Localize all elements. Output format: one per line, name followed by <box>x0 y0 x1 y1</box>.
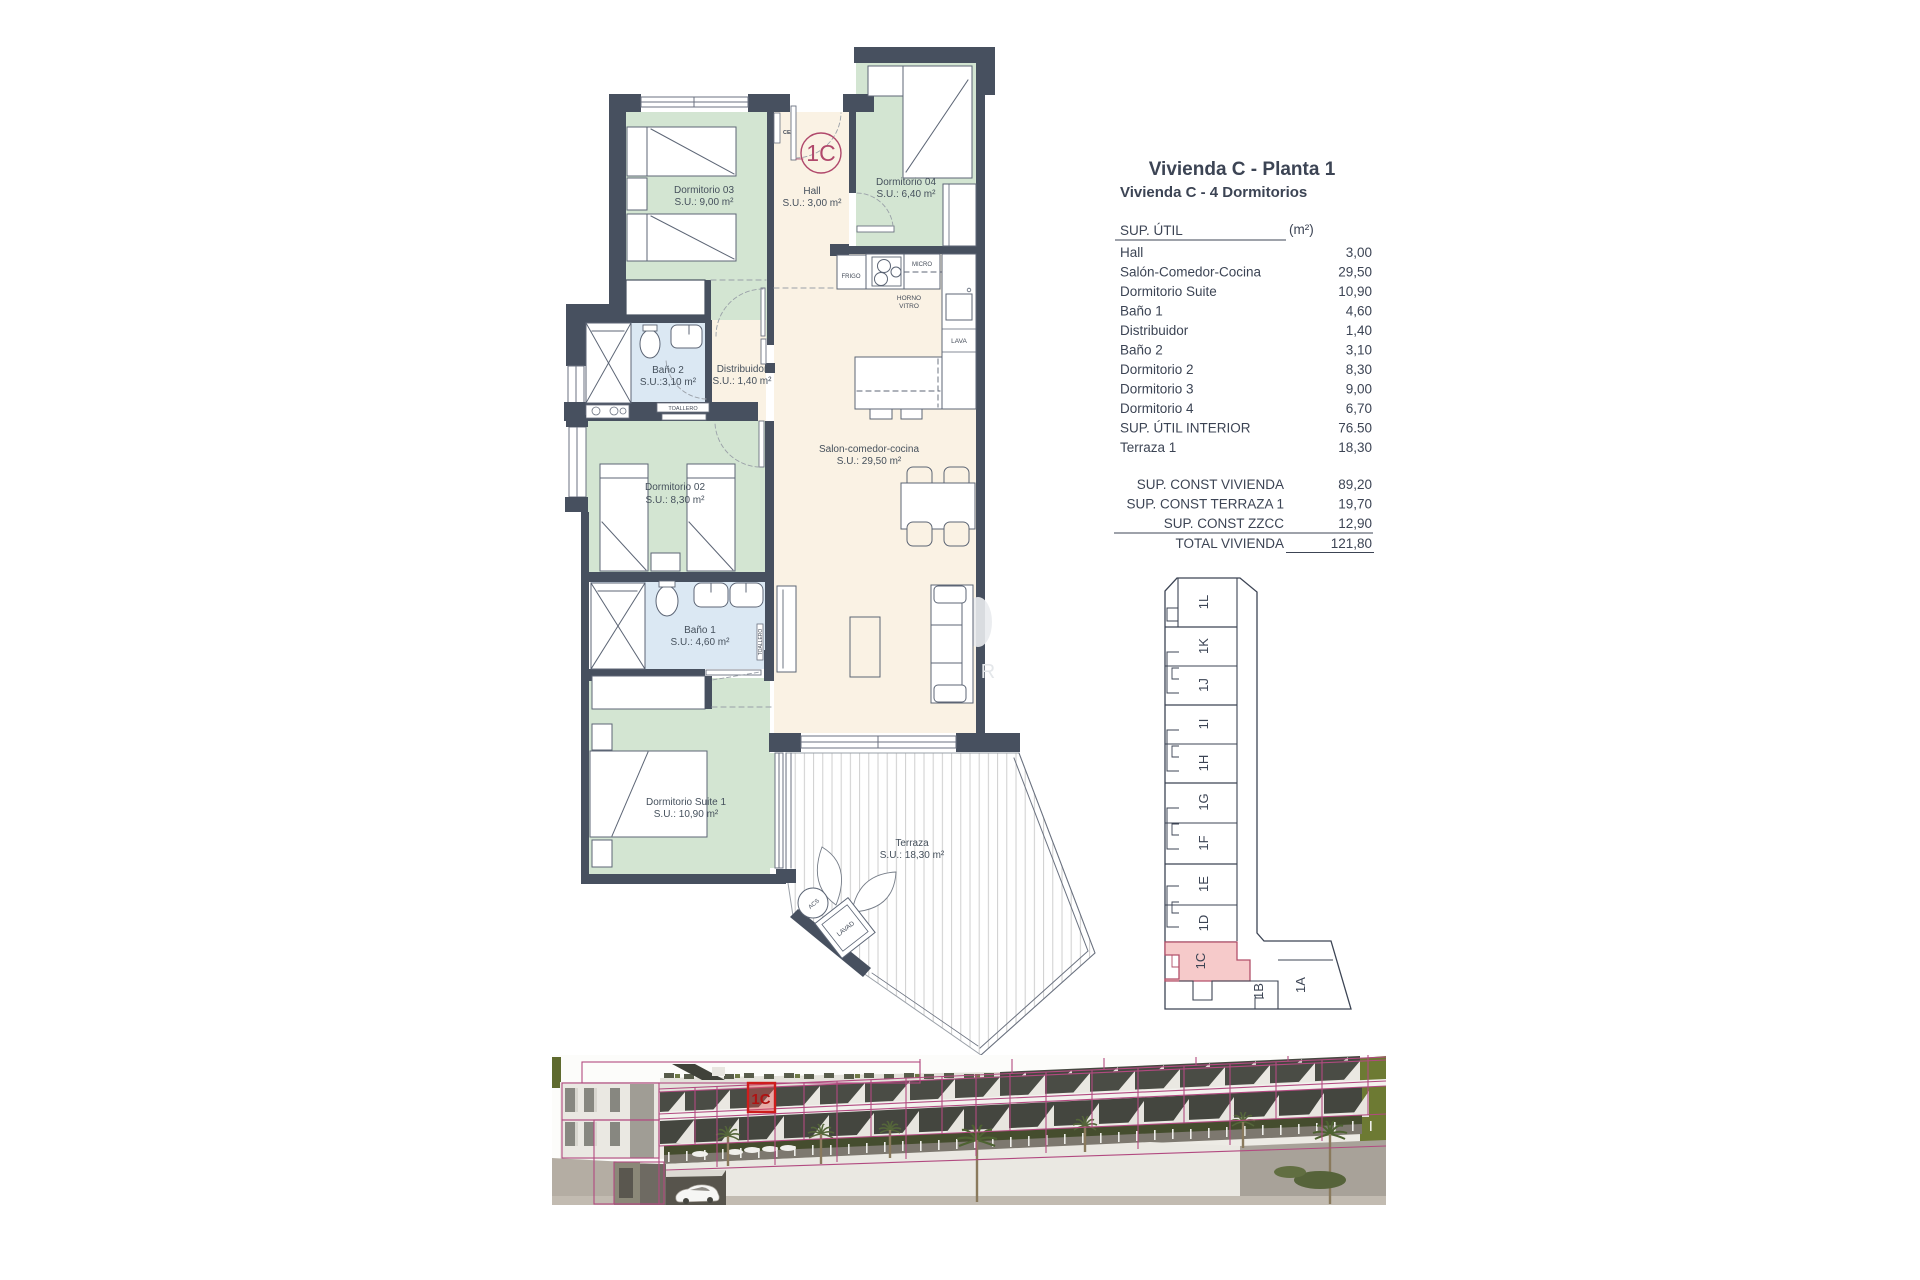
svg-text:S.U.: 10,90 m²: S.U.: 10,90 m² <box>654 809 719 820</box>
svg-text:CE: CE <box>783 130 791 136</box>
svg-text:1K: 1K <box>1196 638 1211 654</box>
svg-text:1G: 1G <box>1196 793 1211 810</box>
svg-text:29,50: 29,50 <box>1338 265 1372 280</box>
svg-text:Distribuidor: Distribuidor <box>717 364 768 375</box>
svg-text:R: R <box>981 661 995 683</box>
svg-text:19,70: 19,70 <box>1338 497 1372 512</box>
svg-text:Dormitorio 03: Dormitorio 03 <box>674 185 734 196</box>
svg-text:SUP. CONST TERRAZA 1: SUP. CONST TERRAZA 1 <box>1126 497 1284 512</box>
svg-text:3,10: 3,10 <box>1346 343 1372 358</box>
svg-text:HORNO: HORNO <box>897 295 921 302</box>
svg-text:Dormitorio 04: Dormitorio 04 <box>876 177 936 188</box>
svg-text:1F: 1F <box>1196 835 1211 850</box>
svg-text:S.U.:3,10 m²: S.U.:3,10 m² <box>640 377 697 388</box>
svg-text:Baño 1: Baño 1 <box>1120 304 1163 319</box>
svg-text:TOTAL VIVIENDA: TOTAL VIVIENDA <box>1175 536 1284 551</box>
svg-text:Vivienda C - 4 Dormitorios: Vivienda C - 4 Dormitorios <box>1120 184 1307 201</box>
svg-text:Dormitorio 2: Dormitorio 2 <box>1120 362 1194 377</box>
svg-text:1L: 1L <box>1196 595 1211 609</box>
svg-text:Hall: Hall <box>1120 245 1143 260</box>
svg-text:1I: 1I <box>1196 719 1211 730</box>
svg-text:S.U.: 1,40 m²: S.U.: 1,40 m² <box>713 376 773 387</box>
svg-text:1C: 1C <box>751 1091 770 1108</box>
svg-text:(m²): (m²) <box>1289 222 1314 237</box>
svg-text:10,90: 10,90 <box>1338 284 1372 299</box>
svg-text:LAVA: LAVA <box>951 338 967 345</box>
svg-text:Distribuidor: Distribuidor <box>1120 323 1189 338</box>
svg-text:1C: 1C <box>1193 953 1208 970</box>
svg-text:4,60: 4,60 <box>1346 304 1372 319</box>
svg-text:Dormitorio Suite: Dormitorio Suite <box>1120 284 1217 299</box>
svg-text:Dormitorio 4: Dormitorio 4 <box>1120 401 1194 416</box>
svg-text:1J: 1J <box>1196 678 1211 692</box>
svg-text:SUP. CONST VIVIENDA: SUP. CONST VIVIENDA <box>1137 477 1284 492</box>
svg-text:Dormitorio 02: Dormitorio 02 <box>645 482 705 493</box>
svg-text:1E: 1E <box>1196 876 1211 892</box>
svg-text:S.U.: 18,30 m²: S.U.: 18,30 m² <box>880 850 945 861</box>
svg-text:Hall: Hall <box>803 186 820 197</box>
svg-text:Baño 2: Baño 2 <box>1120 343 1163 358</box>
svg-text:1D: 1D <box>1196 915 1211 932</box>
svg-text:8,30: 8,30 <box>1346 362 1372 377</box>
svg-text:S.U.: 6,40 m²: S.U.: 6,40 m² <box>877 189 937 200</box>
svg-text:MICRO: MICRO <box>912 262 932 268</box>
svg-text:S.U.: 8,30 m²: S.U.: 8,30 m² <box>646 495 706 506</box>
svg-text:FRIGO: FRIGO <box>842 274 861 280</box>
svg-text:TOALLERO: TOALLERO <box>758 629 764 656</box>
svg-text:1A: 1A <box>1293 977 1308 993</box>
svg-text:Baño 2: Baño 2 <box>652 365 684 376</box>
svg-text:VITRO: VITRO <box>899 303 919 310</box>
svg-text:76.50: 76.50 <box>1338 421 1372 436</box>
svg-text:3,00: 3,00 <box>1346 245 1372 260</box>
svg-text:S.U.: 9,00 m²: S.U.: 9,00 m² <box>675 197 735 208</box>
svg-text:1C: 1C <box>806 140 835 166</box>
svg-text:S.U.: 3,00 m²: S.U.: 3,00 m² <box>783 198 843 209</box>
svg-text:Dormitorio 3: Dormitorio 3 <box>1120 382 1194 397</box>
svg-text:1,40: 1,40 <box>1346 323 1372 338</box>
svg-text:SUP. ÚTIL INTERIOR: SUP. ÚTIL INTERIOR <box>1120 421 1251 436</box>
svg-text:Dormitorio Suite 1: Dormitorio Suite 1 <box>646 797 726 808</box>
svg-text:Terraza: Terraza <box>895 838 929 849</box>
svg-text:1B: 1B <box>1251 983 1266 999</box>
svg-text:Vivienda C - Planta 1: Vivienda C - Planta 1 <box>1149 159 1336 180</box>
svg-text:Baño 1: Baño 1 <box>684 625 716 636</box>
svg-text:SUP. CONST ZZCC: SUP. CONST ZZCC <box>1164 516 1285 531</box>
svg-text:1H: 1H <box>1196 755 1211 772</box>
svg-text:6,70: 6,70 <box>1346 401 1372 416</box>
svg-text:121,80: 121,80 <box>1331 536 1372 551</box>
svg-text:12,90: 12,90 <box>1338 516 1372 531</box>
svg-text:S.U.: 4,60 m²: S.U.: 4,60 m² <box>671 637 731 648</box>
svg-text:Salón-Comedor-Cocina: Salón-Comedor-Cocina <box>1120 265 1262 280</box>
svg-text:S.U.: 29,50 m²: S.U.: 29,50 m² <box>837 456 902 467</box>
svg-text:Terraza 1: Terraza 1 <box>1120 440 1176 455</box>
svg-text:TOALLERO: TOALLERO <box>668 406 698 412</box>
svg-text:9,00: 9,00 <box>1346 382 1372 397</box>
svg-text:Salon-comedor-cocina: Salon-comedor-cocina <box>819 444 919 455</box>
svg-text:SUP. ÚTIL: SUP. ÚTIL <box>1120 223 1183 238</box>
svg-text:89,20: 89,20 <box>1338 477 1372 492</box>
svg-text:18,30: 18,30 <box>1338 440 1372 455</box>
